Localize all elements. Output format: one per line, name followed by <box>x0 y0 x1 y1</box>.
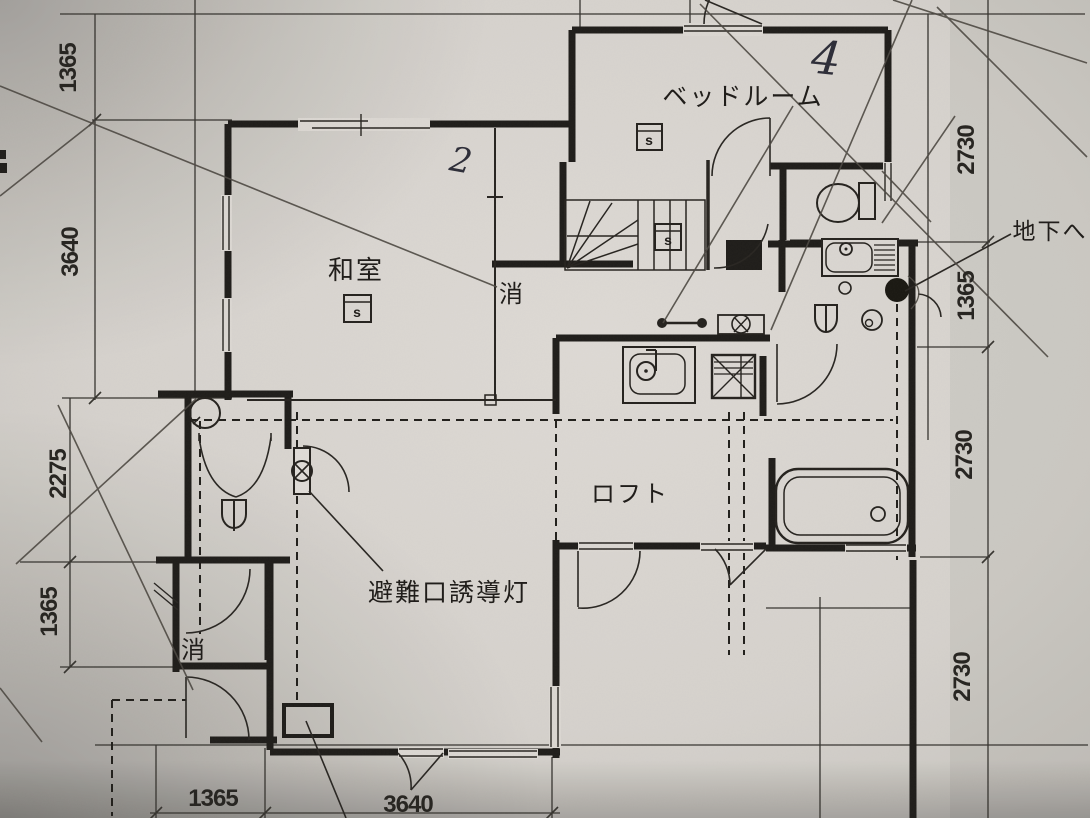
floor-plan-photo: s s s ベッドルーム 和室 ロフト 避難口誘導灯 地下へ 消 消 4 2 1… <box>0 0 1090 818</box>
paper-grain-overlay <box>0 0 1090 818</box>
floor-plan-drawing: s s s ベッドルーム 和室 ロフト 避難口誘導灯 地下へ 消 消 4 2 1… <box>0 0 1090 818</box>
